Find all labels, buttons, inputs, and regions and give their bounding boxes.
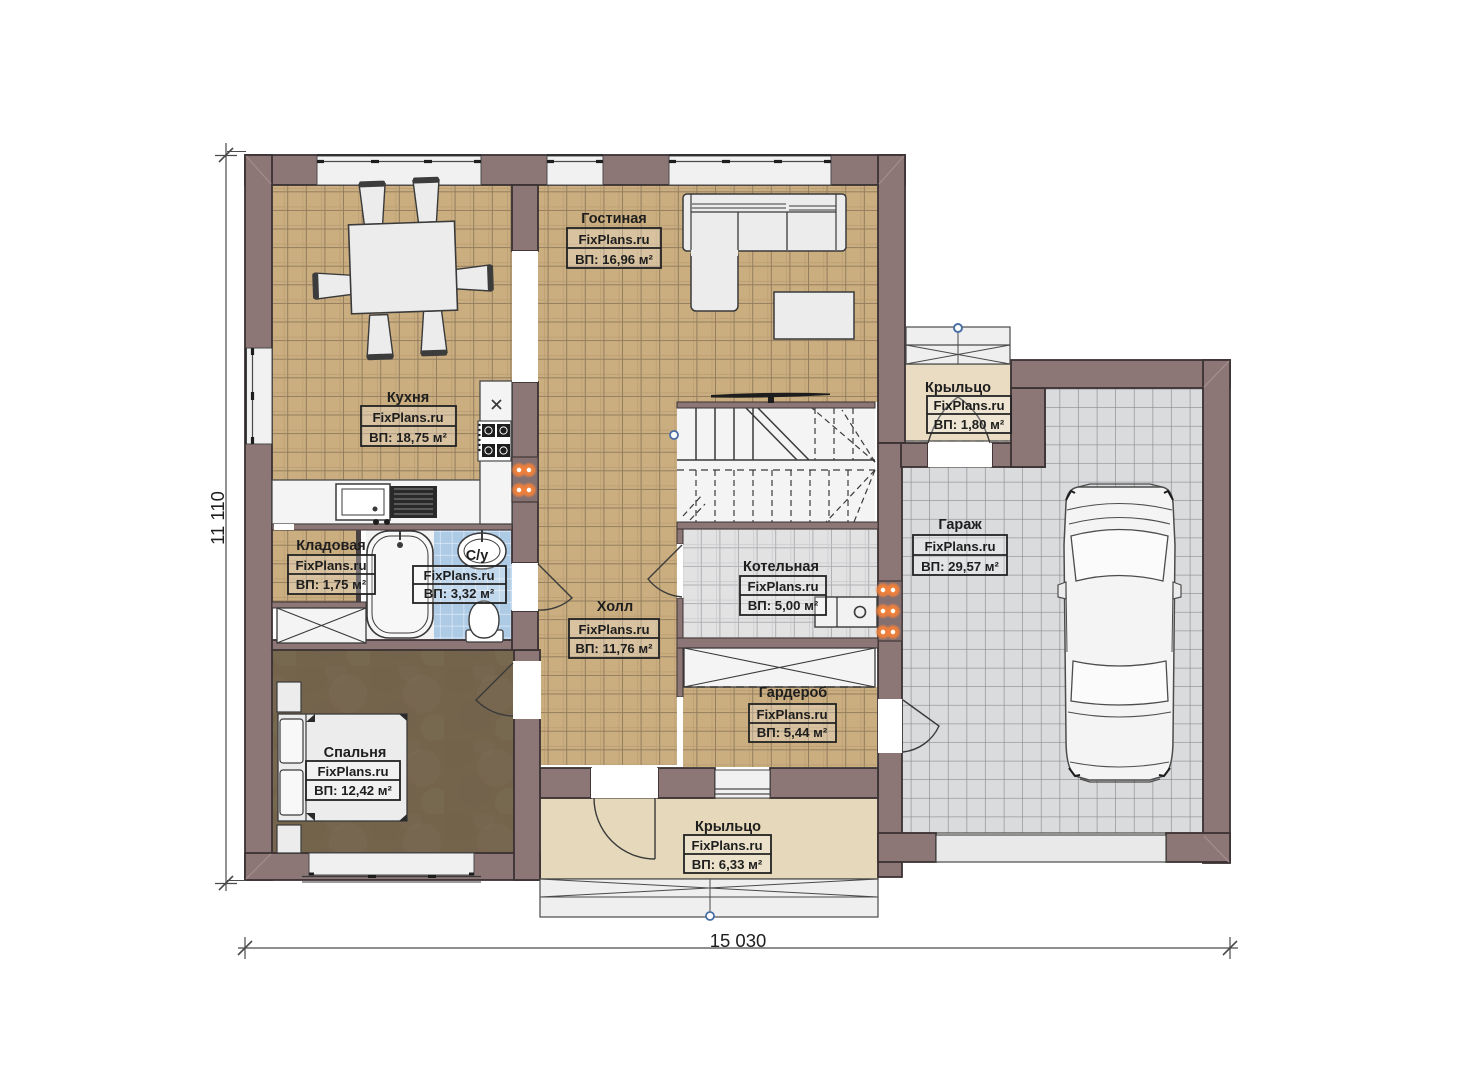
svg-text:ВП: 3,32 м²: ВП: 3,32 м² [424,586,495,601]
svg-text:ВП: 6,33 м²: ВП: 6,33 м² [692,857,763,872]
svg-text:Гостиная: Гостиная [581,211,647,227]
svg-text:Крыльцо: Крыльцо [695,819,761,835]
svg-text:ВП: 1,75 м²: ВП: 1,75 м² [296,577,367,592]
svg-text:ВП: 5,44 м²: ВП: 5,44 м² [757,725,828,740]
svg-text:11 110: 11 110 [207,491,228,545]
svg-text:FixPlans.ru: FixPlans.ru [691,838,762,853]
svg-text:FixPlans.ru: FixPlans.ru [317,764,388,779]
svg-text:Холл: Холл [597,599,633,615]
svg-text:FixPlans.ru: FixPlans.ru [756,707,827,722]
svg-text:FixPlans.ru: FixPlans.ru [933,398,1004,413]
svg-text:FixPlans.ru: FixPlans.ru [423,568,494,583]
svg-text:С/у: С/у [466,548,489,564]
svg-text:Кухня: Кухня [387,390,429,406]
svg-text:ВП: 18,75 м²: ВП: 18,75 м² [369,430,447,445]
svg-text:ВП: 5,00 м²: ВП: 5,00 м² [748,598,819,613]
svg-text:15 030: 15 030 [710,930,767,951]
svg-text:FixPlans.ru: FixPlans.ru [372,410,443,425]
svg-text:Гараж: Гараж [938,517,982,533]
svg-text:ВП: 11,76 м²: ВП: 11,76 м² [575,641,653,656]
svg-text:FixPlans.ru: FixPlans.ru [578,232,649,247]
svg-text:ВП: 1,80 м²: ВП: 1,80 м² [934,417,1005,432]
svg-text:FixPlans.ru: FixPlans.ru [924,539,995,554]
svg-text:ВП: 29,57 м²: ВП: 29,57 м² [921,559,999,574]
svg-text:FixPlans.ru: FixPlans.ru [295,558,366,573]
svg-text:Крыльцо: Крыльцо [925,380,991,396]
svg-text:FixPlans.ru: FixPlans.ru [747,579,818,594]
svg-text:Гардероб: Гардероб [759,685,828,701]
svg-text:Котельная: Котельная [743,559,819,575]
svg-text:Кладовая: Кладовая [296,538,365,554]
svg-text:Спальня: Спальня [324,745,387,761]
svg-text:FixPlans.ru: FixPlans.ru [578,622,649,637]
svg-text:ВП: 16,96 м²: ВП: 16,96 м² [575,252,653,267]
svg-text:ВП: 12,42 м²: ВП: 12,42 м² [314,783,392,798]
